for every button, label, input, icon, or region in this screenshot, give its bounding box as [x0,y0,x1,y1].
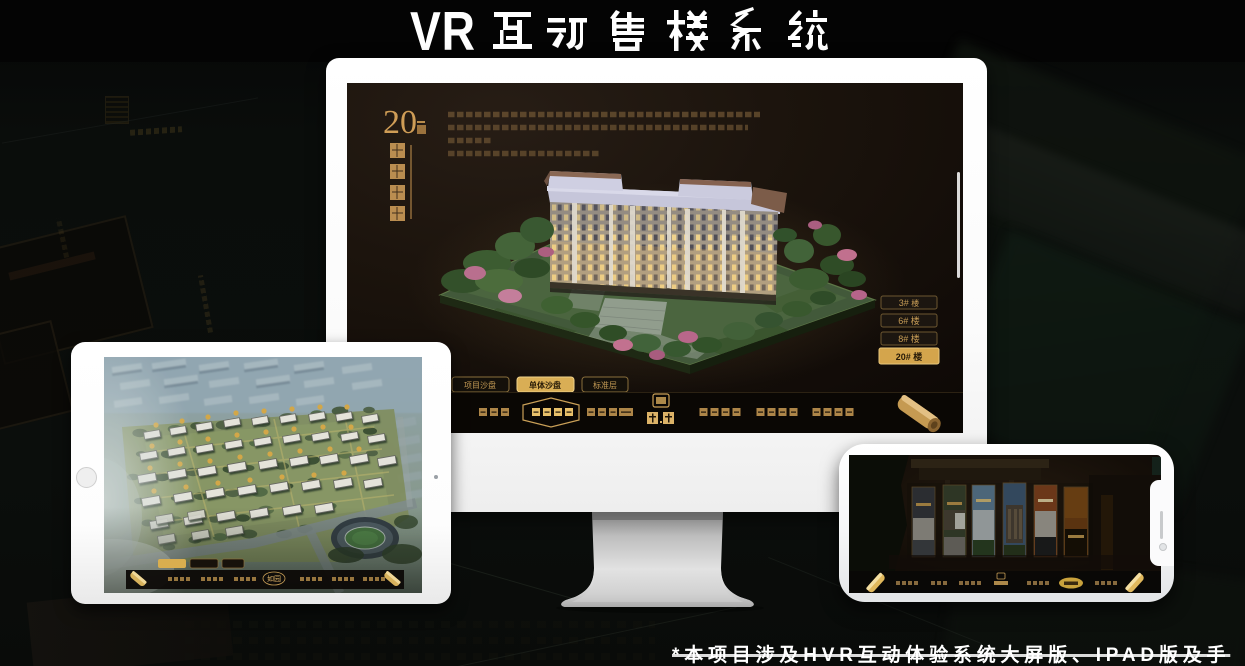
svg-text:6# 楼: 6# 楼 [898,315,920,326]
svg-text:8# 楼: 8# 楼 [898,333,920,344]
svg-text:VR: VR [410,0,476,60]
svg-text:3# 楼: 3# 楼 [899,298,920,308]
svg-text:单体沙盘: 单体沙盘 [529,380,561,390]
svg-text:如园: 如园 [267,574,281,583]
svg-text:标准层: 标准层 [593,380,617,390]
svg-text:项目沙盘: 项目沙盘 [464,380,496,390]
svg-text:20# 楼: 20# 楼 [896,351,923,362]
svg-text:20: 20 [383,104,417,141]
